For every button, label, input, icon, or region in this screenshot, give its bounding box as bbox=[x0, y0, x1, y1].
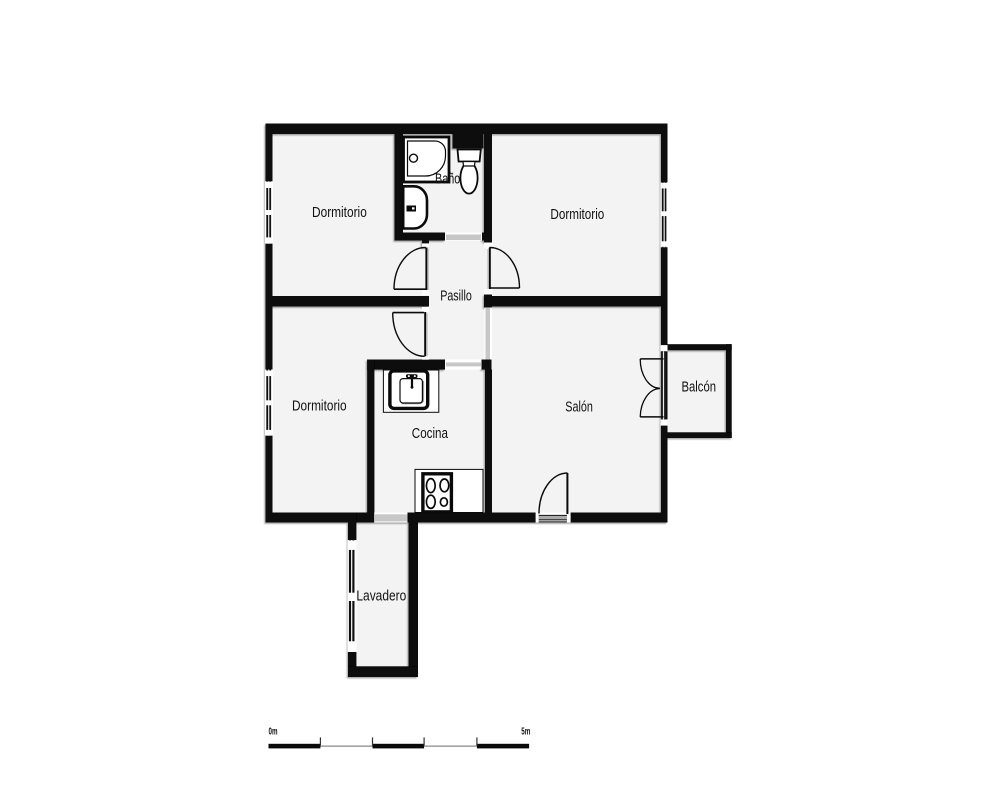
svg-text:Dormitorio: Dormitorio bbox=[312, 205, 367, 221]
svg-text:Balcón: Balcón bbox=[682, 380, 717, 396]
svg-text:Salón: Salón bbox=[565, 400, 593, 416]
svg-text:Baño: Baño bbox=[435, 172, 460, 188]
svg-text:Dormitorio: Dormitorio bbox=[292, 399, 347, 415]
svg-text:Pasillo: Pasillo bbox=[440, 289, 472, 305]
svg-text:Dormitorio: Dormitorio bbox=[550, 207, 604, 223]
svg-text:5m: 5m bbox=[521, 727, 530, 738]
svg-text:Lavadero: Lavadero bbox=[356, 589, 406, 605]
svg-text:0m: 0m bbox=[269, 727, 278, 738]
svg-text:Cocina: Cocina bbox=[412, 426, 449, 442]
